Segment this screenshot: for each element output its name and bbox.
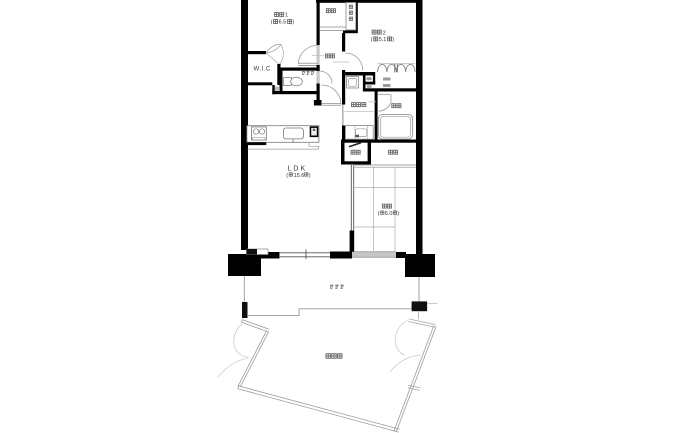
- svg-text:): ): [309, 173, 311, 179]
- svg-text:5.1: 5.1: [379, 37, 387, 43]
- svg-text:W.I.C: W.I.C: [254, 67, 271, 73]
- svg-text:2: 2: [383, 30, 386, 36]
- svg-text:): ): [397, 211, 399, 217]
- svg-text:6.5: 6.5: [279, 19, 287, 25]
- svg-text:1: 1: [285, 13, 288, 19]
- svg-text:): ): [292, 19, 294, 25]
- svg-text:6.0: 6.0: [385, 211, 393, 217]
- svg-text:LDK: LDK: [288, 165, 308, 172]
- svg-text:): ): [392, 37, 394, 43]
- svg-text:(: (: [378, 211, 380, 217]
- svg-text:(: (: [271, 19, 273, 25]
- svg-text:(: (: [286, 173, 288, 179]
- svg-text:(: (: [371, 37, 373, 43]
- svg-text:15.6: 15.6: [294, 173, 305, 179]
